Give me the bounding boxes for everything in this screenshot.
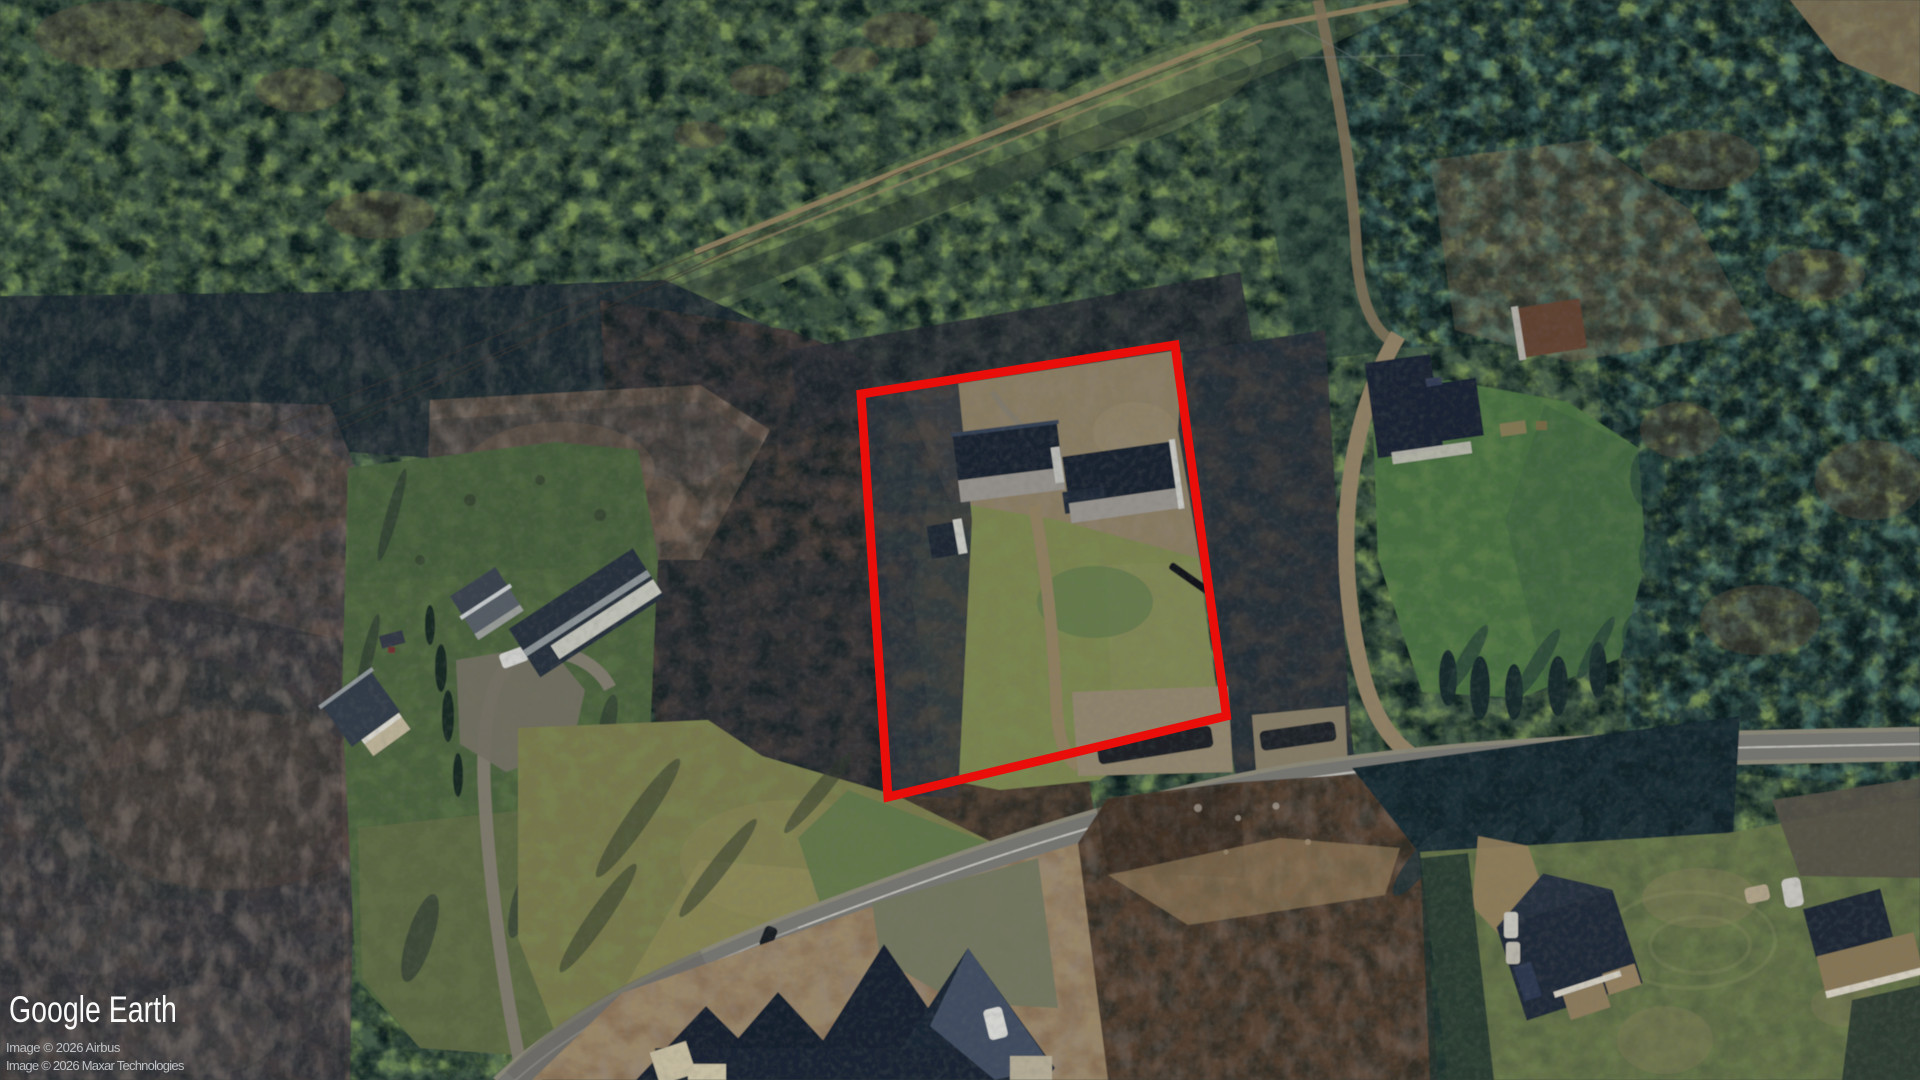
svg-text:Google Earth: Google Earth — [9, 988, 177, 1029]
svg-text:Image © 2026 Maxar Technologie: Image © 2026 Maxar Technologies — [6, 1058, 185, 1073]
svg-text:Image © 2026 Airbus: Image © 2026 Airbus — [6, 1040, 121, 1055]
